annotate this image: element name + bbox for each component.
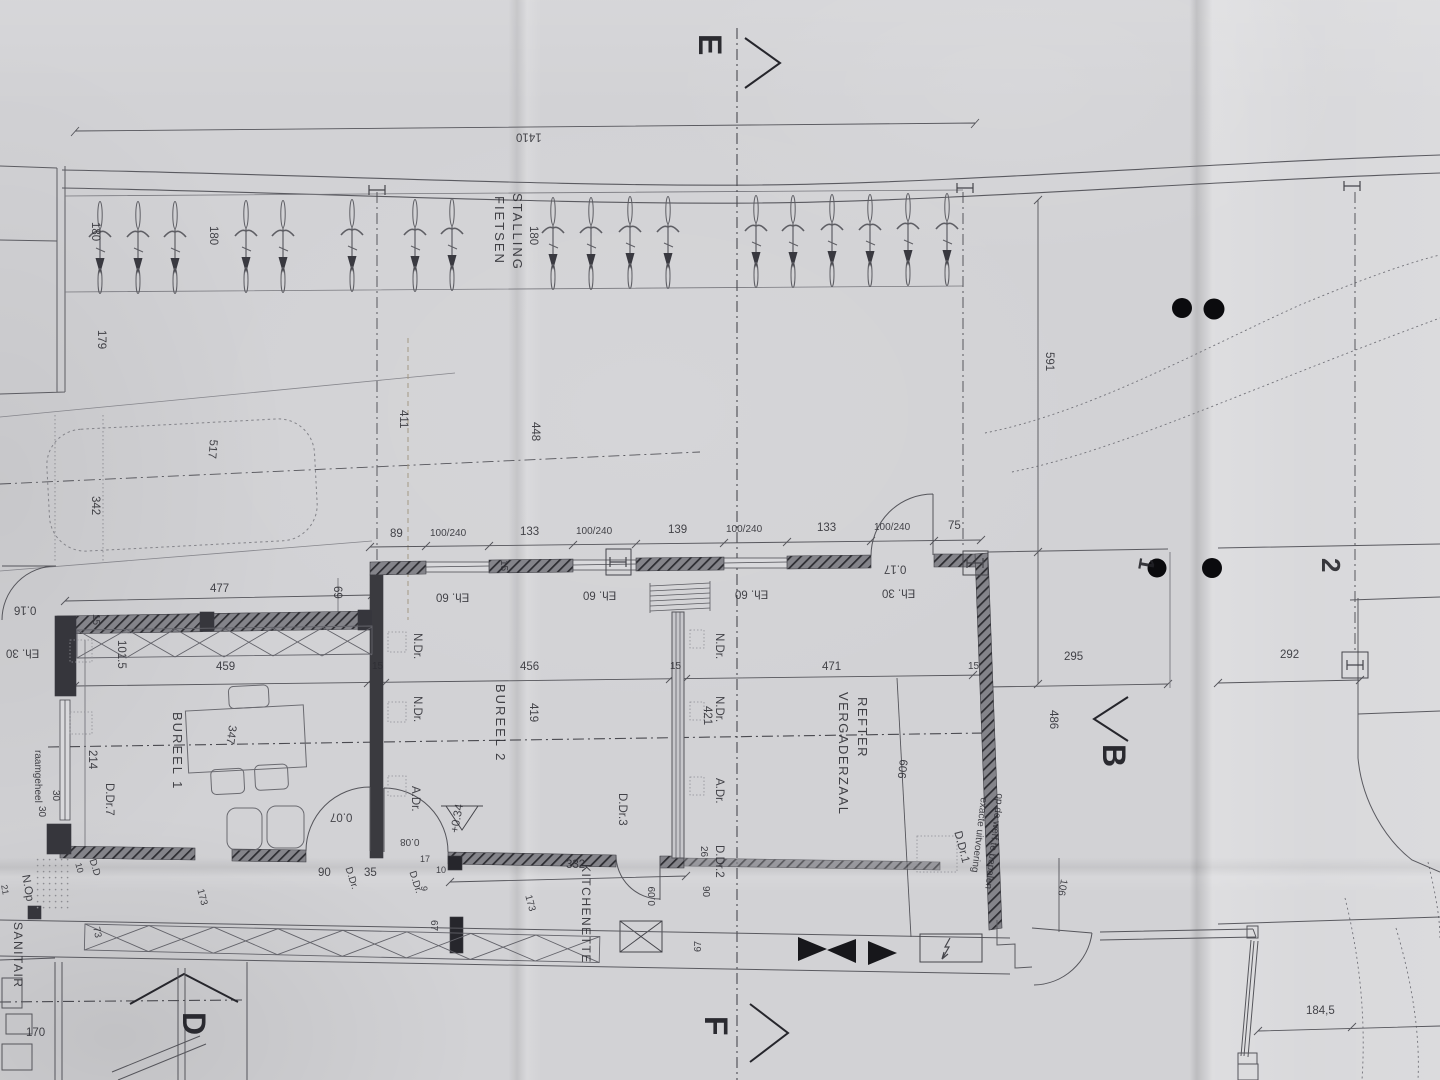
pier-column	[448, 856, 462, 870]
dim-label: 100/240	[726, 525, 762, 535]
punch-hole	[1172, 298, 1192, 318]
pier-column	[358, 610, 372, 630]
vent-box	[620, 921, 662, 952]
floorplan-sheet-photo: 1410 180 180 180 FIETSEN STALLING E F B …	[0, 0, 1440, 1080]
dim-label: 179	[95, 330, 107, 349]
dim-label: 477	[210, 584, 229, 596]
window-label-eh60: Eh. 60	[735, 587, 768, 599]
window-label-eh60: Eh. 60	[583, 588, 616, 600]
dim-label: 486	[1047, 710, 1059, 729]
bicycle-icon	[164, 202, 186, 294]
chevron-b-icon	[1094, 697, 1128, 741]
dim-label: 419	[527, 703, 539, 722]
bicycle-icon	[580, 198, 602, 290]
dim-label: 421	[701, 706, 713, 725]
dim-label: 17	[420, 855, 430, 864]
section-marker-chevrons	[130, 38, 1128, 1062]
dim-label: 15	[90, 614, 100, 625]
room-label-stalling: STALLING	[511, 193, 524, 271]
dim-label: 69	[331, 586, 343, 599]
site-boundary-curves	[985, 255, 1440, 1080]
door-corridor-east	[1032, 928, 1092, 985]
punch-hole	[1202, 558, 1222, 578]
electric-box	[920, 934, 982, 962]
bicycle-icon	[745, 196, 767, 288]
dim-label: 15	[670, 662, 681, 672]
bicycle-icon	[441, 199, 463, 291]
armchair	[267, 806, 304, 848]
level-label-009: 0.09	[648, 887, 658, 906]
door-label-ddr7: D.Dr.7	[103, 783, 115, 816]
pier-column	[450, 917, 463, 953]
dim-label: 9	[419, 886, 428, 891]
section-marker-b: B	[1098, 744, 1130, 767]
dimension-lines	[61, 119, 1440, 1035]
window-label-eh30: Eh. 30	[6, 646, 39, 658]
punch-hole	[1204, 299, 1225, 320]
bicycle-icon	[127, 202, 149, 294]
dim-label: 101.5	[115, 640, 127, 669]
room-label-refter: REFTER	[856, 697, 869, 758]
grid-marker-2: 2	[1318, 558, 1344, 572]
room-label-vergaderzaal: VERGADERZAAL	[837, 692, 850, 815]
ramp	[112, 1036, 206, 1080]
sanitair-block	[0, 856, 247, 1080]
chevron-d-icon	[130, 974, 238, 1004]
dim-label: 606	[894, 759, 908, 779]
dim-label: 89	[390, 529, 403, 541]
bicycle-icon	[619, 197, 641, 289]
dim-label: 67	[694, 941, 704, 952]
lightning-icon	[942, 938, 950, 959]
dim-label: 100/240	[576, 527, 612, 537]
dim-label: 411	[397, 410, 409, 428]
window-label-eh30: Eh. 30	[882, 586, 915, 598]
room-label-kitchenette: KITCHENETTE	[580, 864, 592, 964]
dim-label: 133	[817, 523, 836, 535]
bicycle-icon	[235, 201, 257, 293]
bicycle-icon	[821, 195, 843, 287]
dim-label: 342	[89, 496, 101, 515]
section-axis-lines	[0, 28, 1355, 1080]
dim-label: 10	[436, 866, 446, 875]
door-label-ndr: N.Dr.	[713, 696, 725, 722]
dim-label: 67	[428, 920, 438, 931]
room-label-fietsen: FIETSEN	[493, 196, 506, 265]
section-marker-e: E	[694, 34, 726, 55]
dim-label: 180	[207, 226, 219, 245]
door-label-ndr: N.Dr.	[411, 633, 423, 659]
triangle-symbol	[868, 941, 897, 965]
door-label-adr: A.Dr.	[713, 778, 725, 804]
window-label-eh60: Eh. 60	[436, 590, 469, 602]
bicycle-icon	[341, 200, 363, 292]
bicycle-icon	[89, 202, 111, 294]
dim-label: 139	[668, 525, 687, 537]
triangle-symbol	[827, 939, 856, 963]
note-raamgeheel: raamgeheel	[32, 750, 42, 803]
dim-label: 106	[1055, 878, 1068, 896]
bicycle-icon	[542, 198, 564, 290]
level-label-007: 0.07	[330, 810, 352, 822]
punch-holes	[1148, 298, 1225, 578]
dim-label: 448	[529, 422, 541, 441]
room-label-bureel2: BUREEL 2	[494, 684, 507, 762]
chair	[211, 768, 245, 795]
bicycle-icon	[782, 196, 804, 288]
dim-label: 456	[520, 662, 539, 674]
dim-label: 332	[566, 860, 585, 872]
wall-west-wing	[57, 611, 372, 634]
valve-symbols	[798, 937, 897, 965]
dim-label: 75	[948, 521, 961, 533]
room-label-sanitair: SANITAIR	[12, 922, 24, 988]
dim-label: 180	[89, 222, 101, 241]
dim-label: 30	[50, 790, 60, 801]
bicycle-icon	[859, 195, 881, 287]
door-label-ndr: N.Dr.	[411, 696, 423, 722]
chevron-e-icon	[745, 38, 780, 88]
road-edge-lines	[62, 155, 1440, 203]
dim-label: 170	[26, 1028, 45, 1040]
triangle-symbol	[798, 937, 827, 961]
bicycle-icon	[897, 194, 919, 286]
chevron-f-icon	[750, 1004, 788, 1062]
site-left-boundary	[0, 166, 65, 394]
dim-label: 15	[968, 662, 979, 672]
dim-label: 15	[372, 662, 383, 672]
bottom-right-building	[1100, 926, 1258, 1080]
dim-label: 214	[86, 750, 98, 769]
dim-label: 517	[205, 439, 218, 459]
armchair	[227, 808, 262, 850]
parking-area	[0, 373, 700, 571]
dim-label: 15	[498, 560, 508, 571]
level-label-017: 0.17	[884, 562, 906, 574]
dim-label: 21	[0, 884, 10, 895]
dim-label: 180	[527, 226, 539, 245]
pier-column	[47, 824, 71, 854]
parked-car-outline	[45, 417, 319, 553]
pier-column	[55, 616, 76, 696]
section-marker-d: D	[178, 1012, 210, 1035]
dim-label: 100/240	[430, 529, 466, 539]
dim-label: 292	[1280, 650, 1299, 662]
dim-label: 26	[698, 846, 708, 857]
door-label-ndr: N.Dr.	[713, 633, 725, 659]
bicycle-icon	[936, 194, 958, 286]
dim-label: 459	[216, 662, 235, 674]
dim-label: 90	[318, 868, 331, 880]
level-label-016: 0.16	[14, 603, 36, 615]
dim-label: 295	[1064, 652, 1083, 664]
plan-linework	[0, 0, 1440, 1080]
dim-label: 184,5	[1306, 1006, 1335, 1018]
section-marker-f: F	[700, 1016, 732, 1036]
dim-label: 35	[364, 868, 377, 880]
level-label-008: 0.08	[400, 836, 419, 846]
door-label-adr: A.Dr.	[409, 786, 421, 812]
bicycle-icon	[404, 200, 426, 292]
dim-label: 471	[822, 662, 841, 674]
dim-label: 30	[36, 806, 46, 817]
bicycle-icon	[272, 201, 294, 293]
chair	[228, 685, 269, 709]
desk	[185, 705, 306, 773]
dim-label: 1410	[516, 130, 542, 142]
stairs	[650, 581, 710, 613]
door-label-ddr2: D.Dr.2	[713, 845, 725, 878]
bicycle-icon	[657, 197, 679, 289]
right-plot-lines	[988, 544, 1440, 924]
door-label-ddr3: D.Dr.3	[616, 793, 628, 826]
dim-label: 347	[223, 724, 237, 745]
furniture-bureel1	[184, 683, 307, 850]
dim-label: 133	[520, 527, 539, 539]
room-label-bureel1: BUREEL 1	[171, 712, 184, 790]
dim-label: 73	[90, 926, 102, 939]
dim-label: 100/240	[874, 523, 910, 533]
dim-label: 90	[700, 886, 710, 897]
duct-wall	[672, 612, 684, 858]
dim-label: 591	[1043, 352, 1055, 371]
